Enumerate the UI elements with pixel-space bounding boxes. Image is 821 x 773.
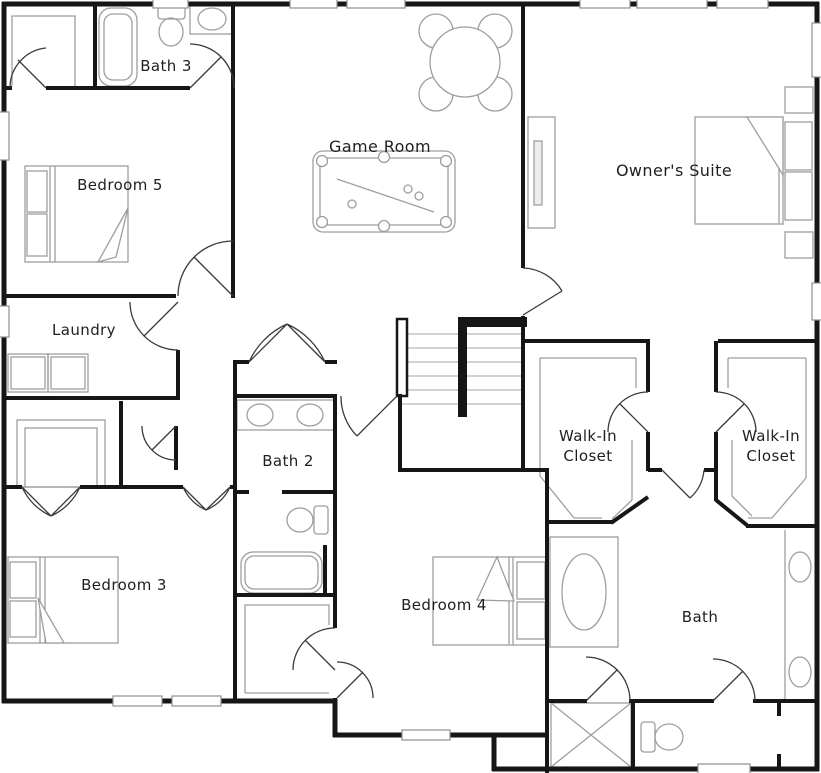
door-arc-laundry [130,302,178,350]
floor-plan-canvas: Bath 3 Bedroom 5 Game Room Owner's Suite… [0,0,821,773]
room-label-walk-in-closet-right-line1: Walk-In [742,427,800,445]
closet-shelves-icon [245,605,329,693]
door-arc-bedroom3-closet [22,487,80,516]
door-arc-hall-closet [142,426,176,460]
window [0,112,9,160]
window [698,764,750,773]
room-label-bedroom3: Bedroom 3 [81,576,167,594]
window [113,696,162,706]
window [402,730,450,740]
door-arc-bedroom3 [183,487,230,510]
door-arc-bath2 [341,396,397,436]
floor-plan: Bath 3 Bedroom 5 Game Room Owner's Suite… [0,0,821,773]
room-label-bath: Bath [682,608,718,626]
door-arc-bath2-linen [249,324,325,362]
room-label-walk-in-closet-left-line2: Closet [563,447,612,465]
window [153,0,188,8]
window [172,696,221,706]
door-arc-water-closet [713,659,755,701]
window [812,283,821,320]
door-arc-bedroom4 [337,662,373,698]
fixtures-layer [8,4,813,767]
room-label-game-room: Game Room [329,137,431,156]
dining-table-icon [419,14,512,111]
door-arc-bedroom5 [178,241,233,296]
bed-icon [8,557,118,643]
room-label-laundry: Laundry [52,321,116,339]
sink-icon [190,4,233,34]
door-arc-shower [586,657,630,701]
door-arc-storage-closet [293,628,335,670]
door-arc-owners-suite [523,268,562,315]
soaking-tub-icon [550,537,618,647]
toilet-icon [641,722,683,752]
closet-shelves-icon [17,420,105,487]
bathtub-icon [99,8,137,86]
room-label-bath2: Bath 2 [262,452,314,470]
room-label-owners-suite: Owner's Suite [616,161,732,180]
door-arc-walk-in-closet-left [608,392,648,432]
window [812,23,821,77]
media-console-icon [528,117,555,228]
window [347,0,405,8]
toilet-icon [158,6,185,46]
window [290,0,337,8]
dryer-icon [48,354,88,392]
window [580,0,630,8]
labels-layer: Bath 3 Bedroom 5 Game Room Owner's Suite… [52,57,800,626]
pool-table-icon [313,151,455,232]
room-label-bath3: Bath 3 [140,57,192,75]
windows-layer [0,0,821,773]
door-arc-bath-entry [662,470,704,498]
double-vanity-icon [785,530,811,699]
shower-icon [551,703,631,767]
door-arc-bedroom5-closet [10,48,46,88]
room-label-bedroom5: Bedroom 5 [77,176,163,194]
staircase-icon [397,317,527,417]
window [717,0,768,8]
toilet-icon [287,506,328,534]
window [637,0,707,8]
door-arc-walk-in-closet-right [716,392,756,432]
room-label-walk-in-closet-right-line2: Closet [746,447,795,465]
room-label-bedroom4: Bedroom 4 [401,596,487,614]
closet-shelves-icon [12,16,75,86]
washer-icon [8,354,48,392]
room-label-walk-in-closet-left-line1: Walk-In [559,427,617,445]
window [0,306,9,337]
double-vanity-icon [237,400,335,430]
door-arc-bath3 [190,44,234,88]
bathtub-icon [241,552,322,593]
